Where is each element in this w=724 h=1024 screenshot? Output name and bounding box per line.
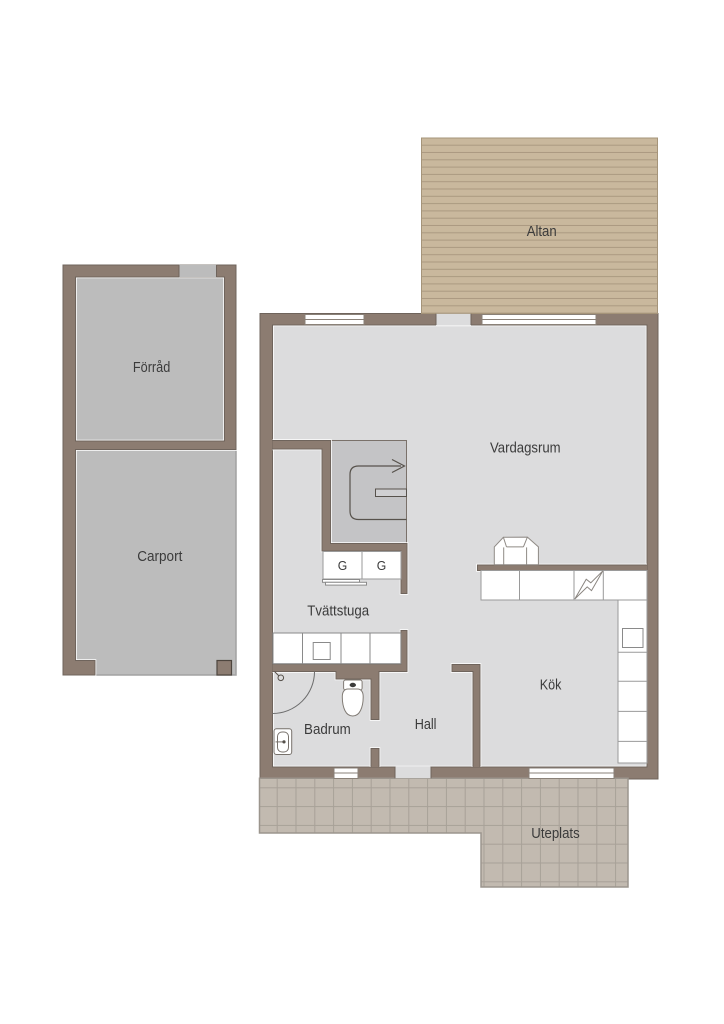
svg-text:Kök: Kök [540,676,562,693]
svg-text:Carport: Carport [137,548,183,565]
svg-text:Förråd: Förråd [133,359,170,376]
svg-text:G: G [377,558,387,573]
svg-text:Badrum: Badrum [304,721,351,738]
svg-text:Tvättstuga: Tvättstuga [307,603,369,620]
svg-text:Vardagsrum: Vardagsrum [490,439,561,456]
svg-text:Hall: Hall [415,716,437,733]
svg-text:Uteplats: Uteplats [531,825,579,842]
svg-text:G: G [338,558,348,573]
svg-text:Altan: Altan [527,223,557,240]
